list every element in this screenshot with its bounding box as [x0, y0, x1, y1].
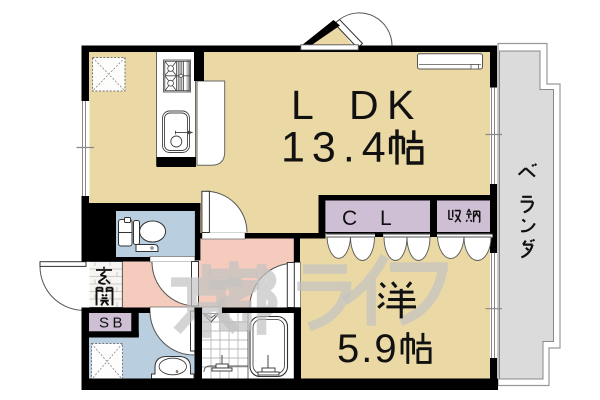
svg-text:L: L	[291, 82, 314, 128]
svg-text:5.9: 5.9	[337, 327, 399, 371]
svg-text:B: B	[113, 315, 123, 332]
svg-text:C: C	[342, 207, 357, 230]
svg-text:K: K	[387, 82, 414, 128]
svg-text:13.4: 13.4	[281, 124, 393, 172]
svg-text:L: L	[380, 207, 392, 230]
svg-text:D: D	[349, 82, 379, 128]
svg-text:S: S	[99, 315, 109, 332]
